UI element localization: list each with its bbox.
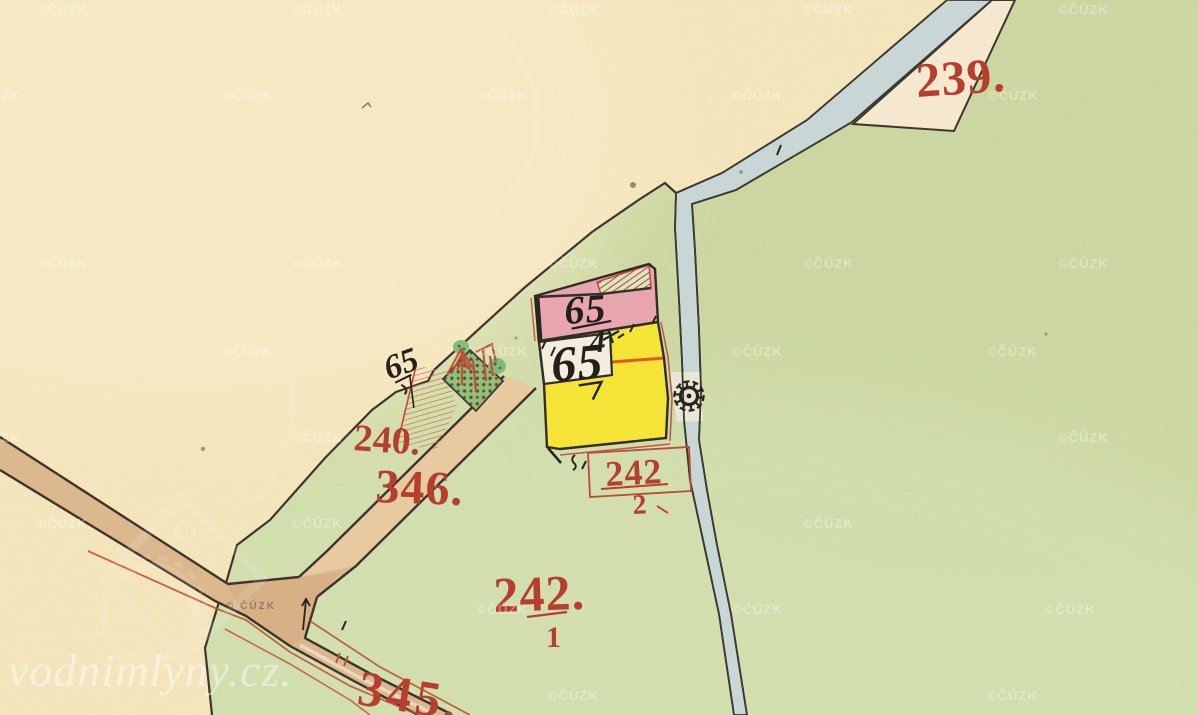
svg-text:©ČÚZK: ©ČÚZK	[987, 344, 1038, 359]
svg-text:©ČÚZK: ©ČÚZK	[803, 516, 854, 531]
svg-text:©ČÚZK: ©ČÚZK	[1058, 256, 1109, 271]
svg-text:©ČÚZK: ©ČÚZK	[222, 344, 273, 359]
svg-text:©ČÚZK: ©ČÚZK	[548, 256, 599, 271]
svg-text:©ČÚZK: ©ČÚZK	[803, 256, 854, 271]
svg-text:©ČÚZK: ©ČÚZK	[1058, 430, 1109, 445]
svg-text:©ČÚZK: ©ČÚZK	[732, 602, 783, 617]
svg-text:©ČÚZK: ©ČÚZK	[1045, 602, 1096, 617]
svg-text:©ČÚZK: ©ČÚZK	[292, 430, 343, 445]
svg-text:©ČÚZK: ©ČÚZK	[292, 516, 343, 531]
svg-text:©ČÚZK: ©ČÚZK	[0, 88, 21, 103]
svg-text:©ČÚZK: ©ČÚZK	[732, 344, 783, 359]
svg-text:©ČÚZK: ©ČÚZK	[732, 88, 783, 103]
svg-text:©ČÚZK: ©ČÚZK	[548, 688, 599, 703]
svg-text:©ČÚZK: ©ČÚZK	[37, 256, 88, 271]
svg-text:©ČÚZK: ©ČÚZK	[987, 688, 1038, 703]
svg-text:vodnimlyny.cz.: vodnimlyny.cz.	[8, 645, 293, 696]
svg-text:©ČÚZK: ©ČÚZK	[477, 88, 528, 103]
svg-text:©ČÚZK: ©ČÚZK	[548, 2, 599, 17]
svg-text:©ČÚZK: ©ČÚZK	[1058, 2, 1109, 17]
svg-text:©ČÚZK: ©ČÚZK	[222, 88, 273, 103]
svg-text:©ČÚZK: ©ČÚZK	[988, 88, 1039, 103]
svg-text:©ČÚZK: ©ČÚZK	[37, 2, 88, 17]
svg-text:©ČÚZK: ©ČÚZK	[292, 256, 343, 271]
svg-text:©ČÚZK: ©ČÚZK	[0, 430, 21, 445]
svg-text:© ČÚZK: © ČÚZK	[226, 599, 276, 612]
svg-text:©ČÚZK: ©ČÚZK	[477, 344, 528, 359]
svg-text:©ČÚZK: ©ČÚZK	[37, 516, 88, 531]
svg-text:©ČÚZK: ©ČÚZK	[803, 2, 854, 17]
svg-text:©ČÚZK: ©ČÚZK	[292, 2, 343, 17]
svg-text:©ČÚZK: ©ČÚZK	[477, 602, 528, 617]
